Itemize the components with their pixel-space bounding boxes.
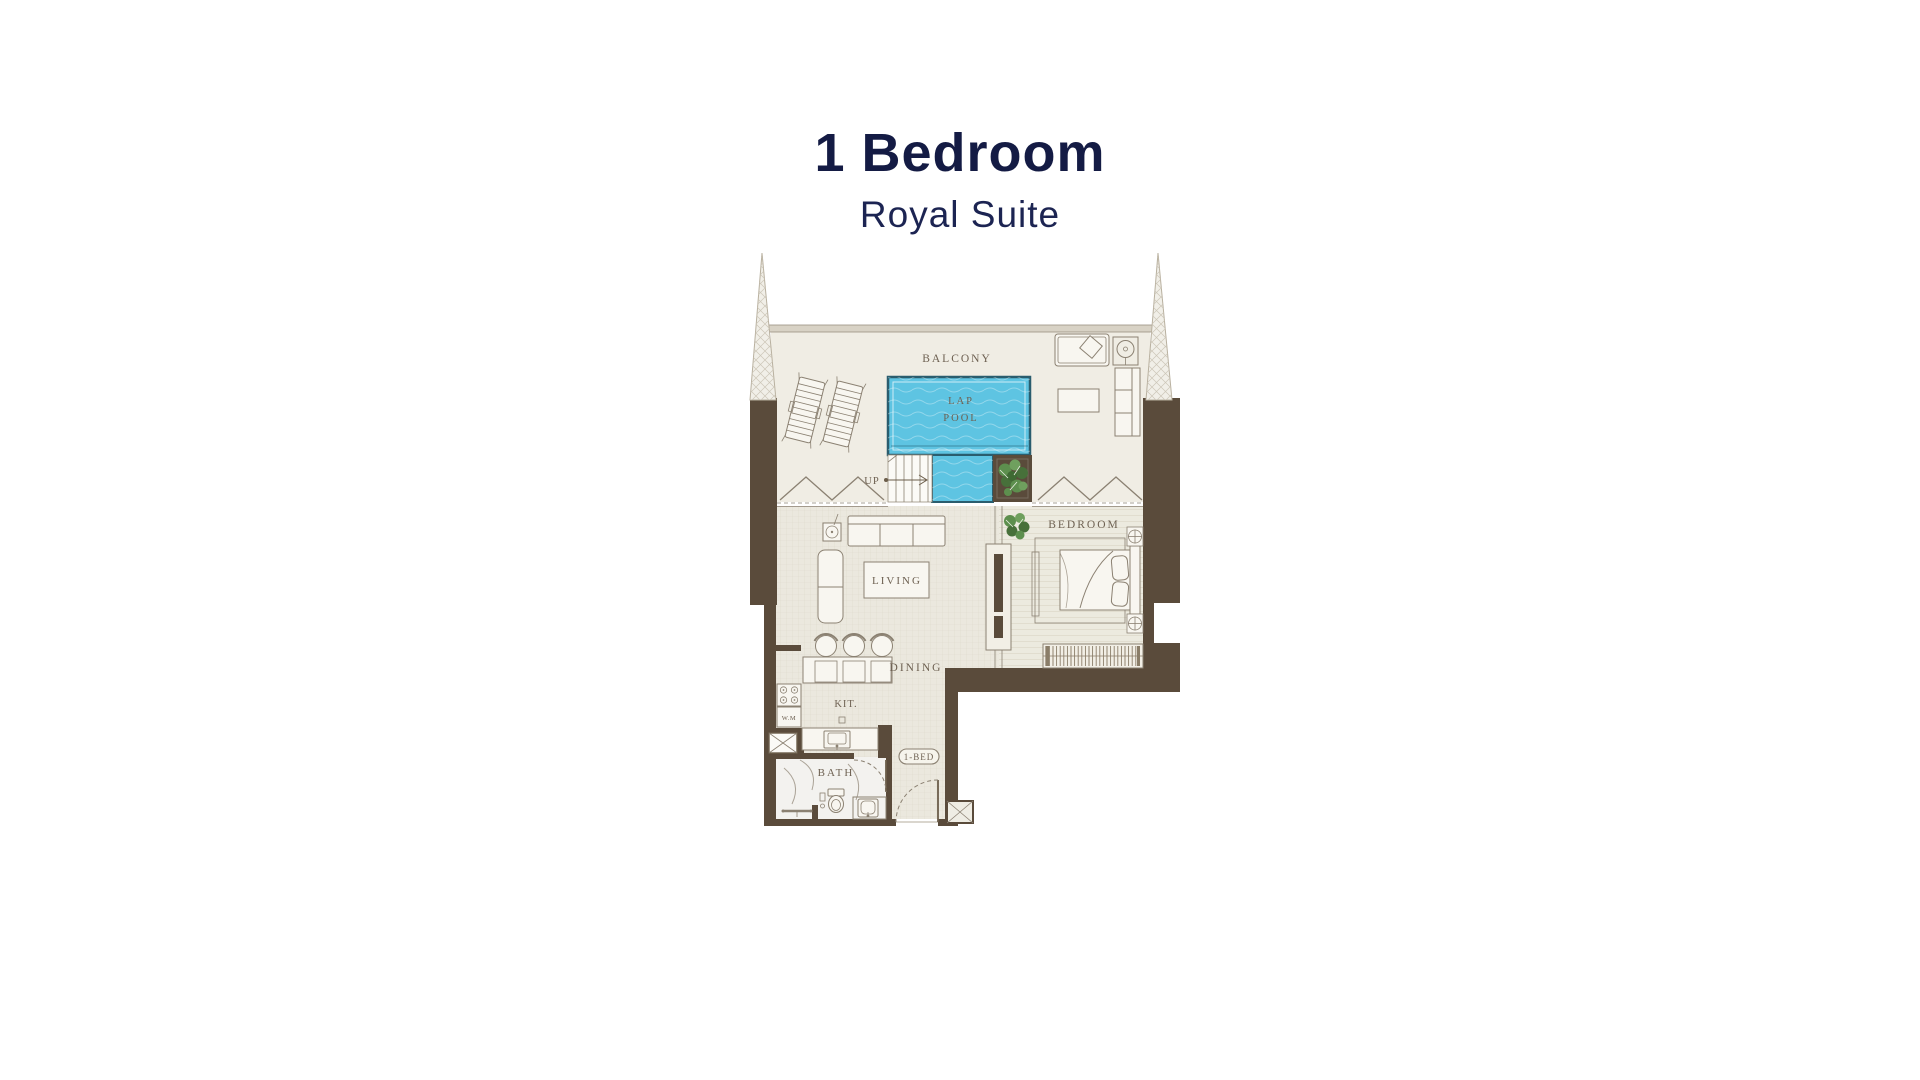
label-balcony: BALCONY (922, 353, 992, 365)
top-wall (760, 325, 1158, 332)
unit-tag: 1-BED (899, 749, 939, 764)
service-shaft (769, 733, 797, 753)
label-kitchen: KIT. (834, 699, 857, 710)
label-pool: POOL (943, 413, 978, 424)
utility-box (947, 801, 973, 823)
label-bath: BATH (818, 767, 855, 779)
label-dining: DINING (890, 662, 943, 674)
label-living: LIVING (872, 575, 922, 587)
balcony-threshold (777, 503, 1143, 507)
dining-table (803, 657, 892, 683)
label-washing-machine: W.M (782, 715, 796, 722)
unit-tag-label: 1-BED (904, 752, 935, 762)
label-lap: LAP (948, 396, 974, 407)
bedside-lamp-icon-bottom (1127, 614, 1143, 633)
outdoor-sofa (1115, 368, 1140, 436)
chaise-lounge (818, 550, 843, 623)
outdoor-daybed (1055, 334, 1109, 366)
living-sofa (848, 516, 945, 546)
label-bedroom: BEDROOM (1048, 519, 1120, 531)
outdoor-coffee-table (1058, 389, 1099, 412)
bedside-lamp-icon-top (1127, 527, 1143, 546)
dining-chair-2 (843, 634, 866, 656)
page: 1 Bedroom Royal Suite (0, 0, 1920, 1080)
floorplan-svg: 1-BED BALCONY LAP POOL UP LIVING BEDROOM… (0, 0, 1920, 1080)
wardrobe (1043, 644, 1143, 668)
dining-chair-1 (815, 634, 838, 656)
label-up: UP (864, 476, 879, 487)
dining-chair-3 (871, 634, 894, 656)
stove-icon (777, 684, 801, 706)
